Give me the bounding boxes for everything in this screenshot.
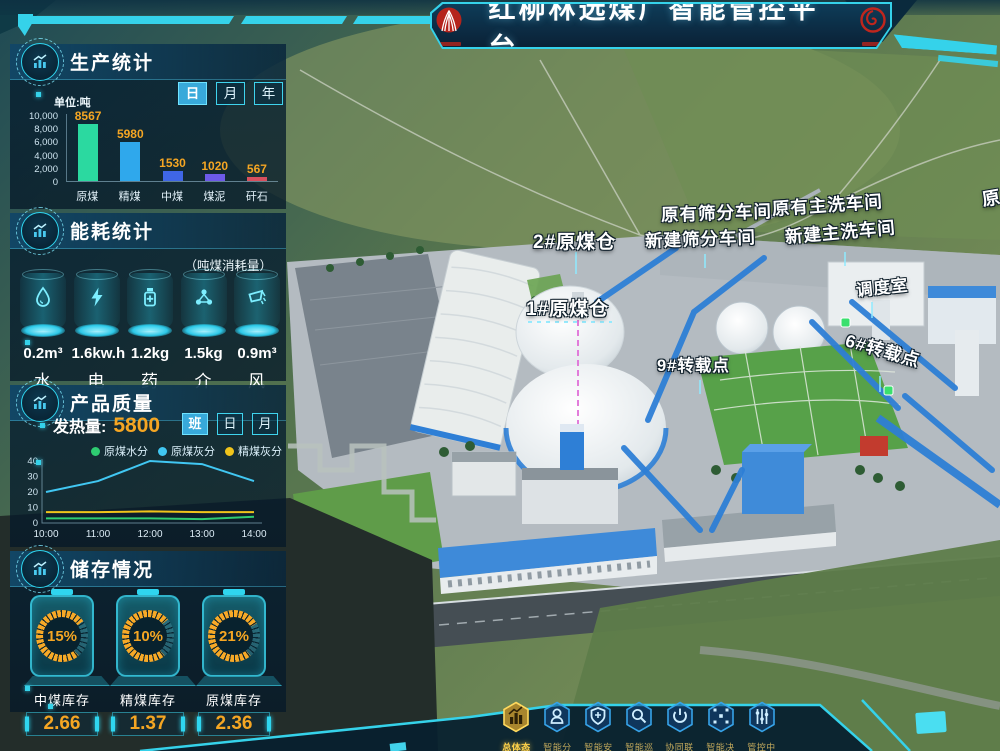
quality-period-tabs: 班日月: [182, 413, 278, 435]
y-tick: 6,000: [34, 137, 58, 148]
top-strip-segment: [353, 16, 430, 24]
power-icon: [659, 701, 700, 738]
nav-label: 智能安监: [580, 740, 617, 751]
energy-item-风: 0.9m³风: [232, 273, 282, 392]
metric-value: 5800: [113, 414, 160, 438]
top-strip-segment: [241, 16, 347, 24]
map-label-9#转载点[interactable]: 9#转载点: [657, 352, 730, 376]
bar-value: 1020: [194, 159, 236, 173]
air-bucket-icon: [245, 285, 269, 314]
quality-line-chart: 01020304010:0011:0012:0013:0014:00: [12, 455, 278, 548]
stats-badge-icon: [16, 207, 64, 255]
nav-label: 协同联控: [661, 740, 698, 751]
nav-label: 总体态势: [498, 740, 535, 751]
energy-items: 0.2m³水1.6kw.h电1.2kg药1.5kg介0.9m³风: [18, 273, 282, 392]
connector-dot: [48, 704, 53, 709]
energy-item-水: 0.2m³水: [18, 273, 68, 392]
y-tick: 4,000: [34, 151, 58, 162]
bar-矸石: [247, 177, 267, 181]
nav-item-智能安监[interactable]: 智能安监: [578, 701, 619, 749]
y-tick: 0: [53, 177, 58, 188]
svg-text:14:00: 14:00: [241, 529, 266, 540]
x-category: 矸石: [236, 184, 278, 204]
bar-value: 567: [236, 162, 278, 176]
panel-energy: 能耗统计 （吨煤消耗量） 0.2m³水1.6kw.h电1.2kg药1.5kg介0…: [10, 213, 286, 381]
sliders-icon: [741, 701, 782, 738]
panel-production: 生产统计 单位:吨 日月年 02,0004,0006,0008,00010,00…: [10, 44, 286, 209]
svg-text:10: 10: [27, 503, 38, 514]
storage-gauge: 15%: [30, 595, 94, 677]
nav-item-智能分选[interactable]: 智能分选: [537, 701, 578, 749]
dashboard: 2#原煤仓1#原煤仓原有筛分车间新建筛分车间原有主洗车间新建主洗车间调度室6#转…: [0, 0, 1000, 751]
energy-item-介: 1.5kg介: [179, 273, 229, 392]
energy-value: 1.6kw.h: [72, 345, 122, 362]
water-drop-icon: [31, 285, 55, 314]
bar-value: 8567: [67, 109, 109, 123]
shield-icon: [578, 701, 619, 738]
panel-title: 生产统计: [70, 48, 154, 75]
bar-中煤: [163, 171, 183, 181]
tab-年[interactable]: 年: [254, 82, 283, 105]
top-strip-segment: [20, 16, 234, 24]
storage-gauge: 10%: [116, 595, 180, 677]
svg-text:10:00: 10:00: [33, 529, 58, 540]
energy-value: 1.2kg: [125, 345, 175, 362]
app-header: 红柳林选煤厂智能管控平台: [430, 2, 892, 49]
storage-percent: 10%: [133, 628, 163, 645]
stats-badge-icon: [16, 38, 64, 86]
panel-title: 能耗统计: [70, 217, 154, 244]
map-label-2#原煤仓[interactable]: 2#原煤仓: [533, 227, 616, 254]
x-category: 中煤: [151, 184, 193, 204]
unit-label: 单位:吨: [54, 94, 91, 110]
map-label-1#原煤仓[interactable]: 1#原煤仓: [526, 294, 609, 321]
connector-dot: [36, 460, 41, 465]
connector-dot: [36, 92, 41, 97]
map-label-新建筛分车间[interactable]: 新建筛分车间: [645, 224, 757, 253]
bar-精煤: [120, 142, 140, 181]
panel-title: 产品质量: [70, 389, 154, 416]
calorific-value-metric: 发热量: 5800: [40, 413, 160, 438]
connector-dot: [25, 340, 30, 345]
panel-quality: 产品质量 发热量: 5800 班日月 原煤水分原煤灰分精煤灰分 01020304…: [10, 385, 286, 547]
tab-月[interactable]: 月: [216, 82, 245, 105]
tab-月[interactable]: 月: [252, 413, 278, 435]
line-series: [46, 511, 254, 512]
x-category: 煤泥: [193, 184, 235, 204]
energy-item-药: 1.2kg药: [125, 273, 175, 392]
nav-label: 智能巡检: [621, 740, 658, 751]
svg-text:0: 0: [33, 518, 38, 529]
energy-value: 0.9m³: [232, 345, 282, 362]
line-series: [46, 517, 254, 519]
energy-value: 0.2m³: [18, 345, 68, 362]
metric-label: 发热量:: [53, 413, 106, 437]
bullet-icon: [40, 423, 45, 428]
x-category: 原煤: [66, 184, 108, 204]
connector-dot: [25, 686, 30, 691]
y-tick: 8,000: [34, 124, 58, 135]
tab-班[interactable]: 班: [182, 413, 208, 435]
energy-value: 1.5kg: [179, 345, 229, 362]
panel-storage: 储存情况 15%中煤库存2.6610%精煤库存1.3721%原煤库存2.36: [10, 551, 286, 712]
tab-日[interactable]: 日: [178, 82, 207, 105]
line-series: [46, 461, 254, 492]
energy-item-电: 1.6kw.h电: [72, 273, 122, 392]
bar-原煤: [78, 124, 98, 181]
lightning-icon: [85, 285, 109, 314]
svg-text:13:00: 13:00: [189, 529, 214, 540]
tab-日[interactable]: 日: [217, 413, 243, 435]
nav-item-协同联控[interactable]: 协同联控: [659, 701, 700, 749]
nav-label: 智能分选: [539, 740, 576, 751]
medicine-bottle-icon: [138, 285, 162, 314]
svg-text:20: 20: [27, 487, 38, 498]
nav-label: 智能决策: [702, 740, 739, 751]
storage-percent: 15%: [47, 628, 77, 645]
y-tick: 2,000: [34, 164, 58, 175]
y-tick: 10,000: [29, 111, 58, 122]
bar-value: 5980: [109, 127, 151, 141]
bar-value: 1530: [151, 156, 193, 170]
bar-煤泥: [205, 174, 225, 181]
production-period-tabs: 日月年: [178, 82, 283, 105]
molecule-icon: [192, 285, 216, 314]
svg-text:11:00: 11:00: [86, 529, 111, 540]
magnifier-icon: [619, 701, 660, 738]
map-label-原[interactable]: 原: [980, 183, 1000, 212]
nav-label: 管控中心: [743, 740, 780, 751]
map-label-原有筛分车间[interactable]: 原有筛分车间: [661, 198, 773, 227]
x-category: 精煤: [108, 184, 150, 204]
svg-text:12:00: 12:00: [137, 529, 162, 540]
storage-percent: 21%: [219, 628, 249, 645]
stats-badge-icon: [16, 545, 64, 593]
nav-item-智能巡检[interactable]: 智能巡检: [619, 701, 660, 749]
nav-item-智能决策[interactable]: 智能决策: [700, 701, 741, 749]
network-icon: [700, 701, 741, 738]
nav-item-总体态势[interactable]: 总体态势: [496, 701, 537, 749]
right-company-logo-icon: [856, 6, 891, 46]
bar-chart-icon: [496, 701, 537, 738]
panel-title: 储存情况: [70, 555, 154, 582]
storage-gauge: 21%: [202, 595, 266, 677]
robot-icon: [537, 701, 578, 738]
production-bar-chart: 02,0004,0006,0008,00010,0008567598015301…: [16, 110, 280, 204]
bottom-nav: 总体态势 智能分选 智能安监 智能巡检 协同联控 智能决策 管控中心: [496, 701, 782, 749]
svg-text:30: 30: [27, 472, 38, 483]
nav-item-管控中心[interactable]: 管控中心: [741, 701, 782, 749]
